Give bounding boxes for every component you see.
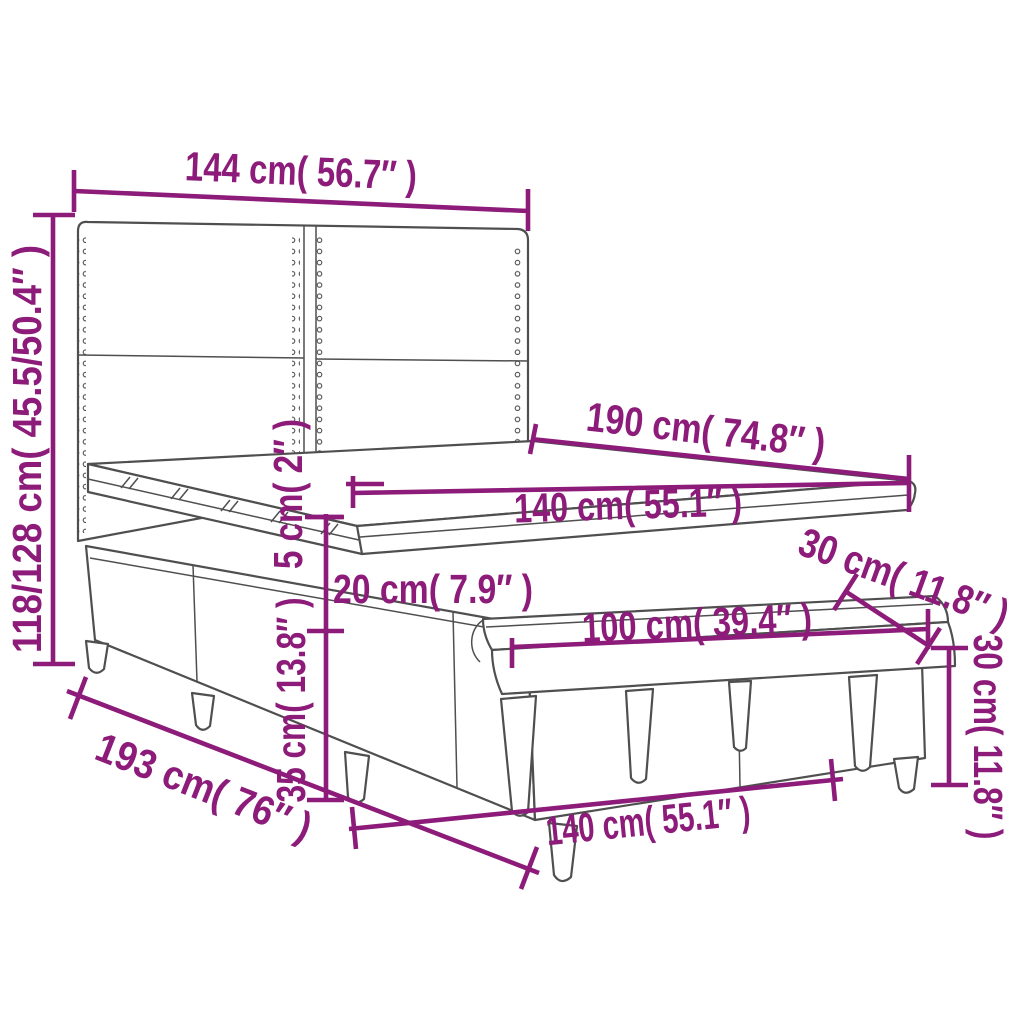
nailhead-trim xyxy=(78,233,86,533)
dimension-diagram-page: 144 cm( 56.7″ ) 118/128 cm( 45.5/50.4″ )… xyxy=(0,0,1024,1024)
dim-headboard-width: 144 cm( 56.7″ ) xyxy=(74,143,528,231)
nailhead-trim xyxy=(514,243,522,443)
nailhead-trim xyxy=(315,237,323,459)
bed-leg xyxy=(345,752,369,803)
dim-total-height: 118/128 cm( 45.5/50.4″ ) xyxy=(4,215,75,664)
bed-leg xyxy=(192,693,214,730)
dim-total-height-label: 118/128 cm( 45.5/50.4″ ) xyxy=(4,245,50,653)
dim-bench-height-label: 30 cm( 11.8″ ) xyxy=(965,635,1011,840)
dim-topper-height-label: 5 cm( 2″ ) xyxy=(265,419,311,569)
dim-bed-width-label: 140 cm( 55.1″ ) xyxy=(513,478,742,531)
bed-leg xyxy=(894,757,918,793)
dim-headboard-width-label: 144 cm( 56.7″ ) xyxy=(184,143,418,199)
dimension-diagram: 144 cm( 56.7″ ) 118/128 cm( 45.5/50.4″ )… xyxy=(0,0,1024,1024)
bed-leg xyxy=(86,641,108,673)
dim-mattress-height-label: 20 cm( 7.9″ ) xyxy=(333,566,533,612)
